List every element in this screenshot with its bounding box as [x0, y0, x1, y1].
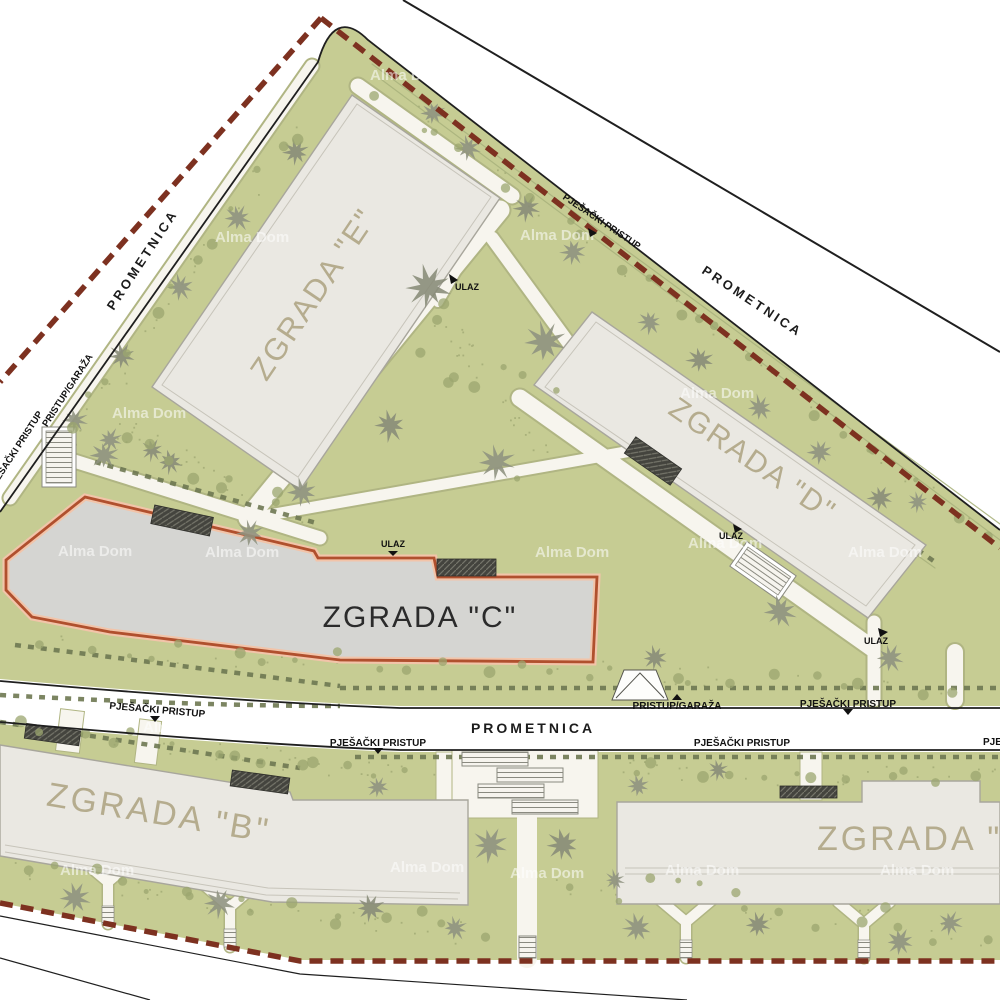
bush-icon	[101, 378, 108, 385]
bush-icon	[272, 498, 280, 506]
grass-dot	[502, 401, 504, 403]
watermark-text: Alma Dom	[535, 544, 609, 561]
bush-icon	[731, 888, 740, 897]
grass-dot	[745, 778, 747, 780]
bush-icon	[153, 307, 165, 319]
bush-icon	[607, 665, 612, 670]
grass-dot	[153, 327, 155, 329]
grass-dot	[374, 918, 376, 920]
watermark-text: Alma Dom	[510, 865, 584, 882]
grass-dot	[289, 759, 291, 761]
grass-dot	[353, 912, 355, 914]
grass-dot	[194, 456, 196, 458]
grass-dot	[887, 682, 889, 684]
grass-dot	[301, 521, 303, 523]
grass-dot	[193, 271, 195, 273]
bush-icon	[519, 371, 527, 379]
bush-icon	[841, 683, 848, 690]
bush-icon	[286, 897, 297, 908]
bush-icon	[247, 909, 254, 916]
grass-dot	[570, 893, 572, 895]
bush-icon	[376, 666, 383, 673]
label-ulaz-d2: ULAZ	[864, 636, 888, 646]
grass-dot	[933, 487, 935, 489]
grass-dot	[460, 921, 462, 923]
grass-dot	[126, 383, 128, 385]
bush-icon	[443, 377, 454, 388]
grass-dot	[391, 771, 393, 773]
grass-dot	[62, 639, 64, 641]
grass-dot	[61, 636, 63, 638]
bush-icon	[805, 772, 816, 783]
bush-icon	[144, 889, 149, 894]
bush-icon	[454, 143, 463, 152]
grass-dot	[777, 784, 779, 786]
bush-icon	[164, 456, 173, 465]
bush-icon	[109, 738, 119, 748]
label-pjesacki-s3: PJEŠAČKI PRISTUP	[694, 736, 790, 749]
bush-icon	[330, 918, 341, 929]
bush-icon	[741, 905, 748, 912]
grass-dot	[940, 693, 942, 695]
grass-dot	[992, 771, 994, 773]
grass-dot	[133, 427, 135, 429]
watermark-text: Alma Dom	[370, 67, 444, 84]
bush-icon	[292, 657, 298, 663]
label-pristup-garaza-south: PRISTUP/GARAŽA	[633, 699, 722, 712]
bush-icon	[852, 678, 864, 690]
grass-dot	[994, 769, 996, 771]
grass-dot	[455, 943, 457, 945]
grass-dot	[377, 917, 379, 919]
grass-dot	[469, 344, 471, 346]
grass-dot	[328, 775, 330, 777]
grass-dot	[450, 341, 452, 343]
grass-dot	[203, 467, 205, 469]
bush-icon	[725, 679, 735, 689]
grass-dot	[904, 481, 906, 483]
bush-icon	[525, 193, 535, 203]
bush-icon	[774, 908, 783, 917]
bush-icon	[481, 933, 490, 942]
grass-dot	[557, 668, 559, 670]
bush-icon	[566, 883, 574, 891]
grass-dot	[461, 329, 463, 331]
grass-dot	[282, 769, 284, 771]
grass-dot	[124, 373, 126, 375]
grass-dot	[472, 345, 474, 347]
bush-icon	[369, 91, 379, 101]
bush-icon	[468, 381, 480, 393]
grass-dot	[364, 923, 366, 925]
grass-dot	[538, 215, 540, 217]
grass-dot	[867, 771, 869, 773]
grass-dot	[624, 275, 626, 277]
grass-dot	[681, 779, 683, 781]
grass-dot	[168, 303, 170, 305]
bush-icon	[371, 773, 376, 778]
grass-dot	[186, 449, 188, 451]
watermark-text: Alma Dom	[390, 859, 464, 876]
bush-icon	[333, 647, 342, 656]
bush-icon	[297, 760, 308, 771]
grass-dot	[633, 760, 635, 762]
grass-dot	[401, 766, 403, 768]
grass-dot	[215, 658, 217, 660]
grass-dot	[29, 878, 31, 880]
grass-dot	[203, 244, 205, 246]
site-plan: Alma DomAlma DomAlma DomAlma DomAlma Dom…	[0, 0, 1000, 1000]
grass-dot	[189, 751, 191, 753]
grass-dot	[713, 334, 715, 336]
grass-dot	[224, 476, 226, 478]
bush-icon	[187, 473, 199, 485]
bush-icon	[439, 657, 448, 666]
bush-icon	[617, 265, 628, 276]
grass-dot	[121, 895, 123, 897]
ramp-a	[780, 786, 837, 798]
bush-icon	[842, 775, 850, 783]
grass-dot	[842, 783, 844, 785]
grass-dot	[428, 121, 430, 123]
grass-dot	[258, 194, 260, 196]
grass-dot	[525, 434, 527, 436]
bush-icon	[971, 771, 982, 782]
grass-dot	[602, 661, 604, 663]
bush-icon	[899, 767, 907, 775]
grass-dot	[280, 750, 282, 752]
grass-dot	[368, 762, 370, 764]
grass-dot	[198, 462, 200, 464]
grass-dot	[294, 757, 296, 759]
bush-icon	[422, 128, 427, 133]
grass-dot	[459, 347, 461, 349]
watermark-text: Alma Dom	[58, 543, 132, 560]
bush-icon	[929, 938, 937, 946]
grass-dot	[190, 258, 192, 260]
grass-dot	[545, 444, 547, 446]
grass-dot	[505, 400, 507, 402]
bush-icon	[335, 913, 341, 919]
grass-dot	[933, 766, 935, 768]
grass-dot	[514, 417, 516, 419]
grass-dot	[119, 423, 121, 425]
bush-icon	[634, 770, 640, 776]
grass-dot	[341, 767, 343, 769]
grass-dot	[367, 774, 369, 776]
watermark-text: Alma Dom	[143, 719, 217, 736]
bush-icon	[725, 771, 734, 780]
bush-icon	[880, 902, 891, 913]
grass-dot	[533, 449, 535, 451]
grass-dot	[303, 664, 305, 666]
grass-dot	[648, 773, 650, 775]
grass-dot	[414, 933, 416, 935]
bush-icon	[272, 487, 283, 498]
bush-icon	[484, 666, 496, 678]
grass-dot	[401, 922, 403, 924]
grass-dot	[745, 912, 747, 914]
grass-dot	[156, 894, 158, 896]
grass-dot	[679, 768, 681, 770]
bush-icon	[229, 751, 240, 762]
grass-dot	[867, 909, 869, 911]
watermark-text: Alma Dom	[215, 229, 289, 246]
grass-dot	[216, 759, 218, 761]
grass-dot	[433, 774, 435, 776]
bush-icon	[402, 666, 411, 675]
watermark-text: Alma Dom	[848, 544, 922, 561]
grass-dot	[886, 766, 888, 768]
grass-dot	[980, 945, 982, 947]
bush-icon	[761, 775, 767, 781]
bush-icon	[697, 771, 709, 783]
pjesacki-s4-arrow-icon	[843, 709, 853, 715]
grass-dot	[145, 330, 147, 332]
grass-dot	[434, 325, 436, 327]
label-ulaz-c: ULAZ	[381, 539, 405, 549]
grass-dot	[476, 377, 478, 379]
label-building-c: ZGRADA "C"	[323, 601, 518, 634]
bush-icon	[586, 674, 593, 681]
bush-icon	[123, 349, 131, 357]
garden-stairs	[224, 929, 236, 947]
grass-dot	[629, 762, 631, 764]
bush-icon	[67, 422, 79, 434]
grass-dot	[157, 435, 159, 437]
grass-dot	[296, 127, 298, 129]
road-bottom-2	[0, 958, 150, 1000]
grass-dot	[109, 383, 111, 385]
grass-dot	[760, 365, 762, 367]
bush-icon	[685, 680, 691, 686]
grass-dot	[518, 417, 520, 419]
bush-icon	[51, 862, 59, 870]
bush-icon	[645, 757, 656, 768]
grass-dot	[138, 882, 140, 884]
bush-icon	[794, 771, 799, 776]
bush-icon	[381, 913, 392, 924]
watermark-text: Alma Dom	[880, 862, 954, 879]
bush-icon	[813, 671, 822, 680]
bush-icon	[145, 439, 156, 450]
grass-dot	[298, 910, 300, 912]
bush-icon	[894, 923, 903, 932]
bush-icon	[170, 741, 175, 746]
grass-dot	[675, 683, 677, 685]
bush-icon	[839, 431, 847, 439]
stairs-west	[42, 427, 76, 487]
bush-icon	[553, 387, 560, 394]
bush-icon	[343, 761, 352, 770]
grass-dot	[163, 743, 165, 745]
grass-dot	[468, 365, 470, 367]
bush-icon	[913, 477, 918, 482]
grass-dot	[387, 764, 389, 766]
grass-dot	[241, 494, 243, 496]
grass-dot	[797, 675, 799, 677]
grass-dot	[462, 332, 464, 334]
grass-dot	[513, 424, 515, 426]
bush-icon	[432, 315, 442, 325]
grass-dot	[147, 898, 149, 900]
grass-dot	[161, 891, 163, 893]
grass-dot	[206, 907, 208, 909]
grass-dot	[186, 461, 188, 463]
bush-icon	[256, 758, 266, 768]
bush-icon	[809, 410, 820, 421]
bush-icon	[501, 364, 507, 370]
bush-icon	[193, 255, 202, 264]
bush-icon	[889, 772, 897, 780]
grass-dot	[167, 660, 169, 662]
bush-icon	[546, 668, 553, 675]
label-ulaz-e: ULAZ	[455, 282, 479, 292]
watermark-text: Alma Dom	[205, 544, 279, 561]
grass-dot	[427, 931, 429, 933]
bush-icon	[238, 896, 244, 902]
bush-icon	[225, 475, 232, 482]
grass-dot	[131, 432, 133, 434]
bush-icon	[35, 728, 43, 736]
garden-stairs	[680, 940, 692, 958]
grass-dot	[101, 387, 103, 389]
grass-dot	[600, 890, 602, 892]
grass-dot	[456, 355, 458, 357]
bush-icon	[85, 391, 92, 398]
bush-icon	[127, 653, 132, 658]
bush-icon	[417, 906, 428, 917]
grass-dot	[948, 776, 950, 778]
bush-icon	[122, 432, 133, 443]
bush-icon	[857, 917, 868, 928]
grass-dot	[931, 930, 933, 932]
grass-dot	[149, 889, 151, 891]
grass-dot	[86, 408, 88, 410]
grass-dot	[883, 681, 885, 683]
grass-dot	[810, 406, 812, 408]
grass-dot	[156, 319, 158, 321]
bush-icon	[24, 865, 34, 875]
bush-icon	[307, 757, 319, 769]
grass-dot	[880, 462, 882, 464]
grass-dot	[978, 769, 980, 771]
grass-dot	[837, 781, 839, 783]
bush-icon	[168, 284, 173, 289]
grass-dot	[462, 355, 464, 357]
label-pjesacki-s5: PJEŠAČKI PRISTUP	[983, 735, 1000, 748]
grass-dot	[664, 681, 666, 683]
grass-dot	[623, 771, 625, 773]
grass-dot	[679, 668, 681, 670]
grass-dot	[15, 862, 17, 864]
bush-icon	[518, 660, 527, 669]
bush-icon	[677, 310, 688, 321]
watermark-text: Alma Dom	[112, 405, 186, 422]
bush-icon	[35, 640, 44, 649]
grass-dot	[235, 666, 237, 668]
bush-icon	[228, 206, 233, 211]
bush-icon	[697, 880, 703, 886]
grass-dot	[917, 776, 919, 778]
grass-dot	[135, 423, 137, 425]
bush-icon	[185, 892, 193, 900]
bush-icon	[947, 688, 957, 698]
grass-dot	[238, 207, 240, 209]
bush-icon	[514, 475, 520, 481]
grass-dot	[458, 354, 460, 356]
grass-dot	[213, 470, 215, 472]
grass-dot	[482, 364, 484, 366]
grass-dot	[267, 662, 269, 664]
label-pjesacki-s4: PJEŠAČKI PRISTUP	[800, 697, 896, 710]
bush-icon	[402, 767, 408, 773]
bush-icon	[616, 898, 623, 905]
bush-icon	[215, 750, 224, 759]
grass-dot	[686, 767, 688, 769]
garden-stairs	[858, 940, 870, 958]
grass-dot	[835, 923, 837, 925]
bush-icon	[984, 935, 993, 944]
bush-icon	[292, 134, 303, 145]
grass-dot	[170, 753, 172, 755]
grass-dot	[529, 432, 531, 434]
bush-icon	[811, 924, 819, 932]
bush-icon	[415, 348, 425, 358]
grass-dot	[79, 430, 81, 432]
grass-dot	[266, 747, 268, 749]
bush-icon	[438, 298, 449, 309]
grass-dot	[716, 679, 718, 681]
watermark-text: Alma Dom	[520, 227, 594, 244]
bush-icon	[235, 648, 246, 659]
grass-dot	[497, 169, 499, 171]
grass-dot	[770, 918, 772, 920]
bush-icon	[258, 658, 266, 666]
bush-icon	[501, 183, 510, 192]
bush-icon	[279, 141, 289, 151]
label-prometnica-south: PROMETNICA	[471, 720, 595, 736]
bush-icon	[174, 640, 182, 648]
label-pjesacki-s2: PJEŠAČKI PRISTUP	[330, 736, 426, 749]
grass-dot	[219, 743, 221, 745]
site-plan-canvas: Alma DomAlma DomAlma DomAlma DomAlma Dom…	[0, 0, 1000, 1000]
bush-icon	[431, 129, 438, 136]
grass-dot	[547, 451, 549, 453]
grass-dot	[510, 420, 512, 422]
grass-dot	[194, 265, 196, 267]
bush-icon	[673, 673, 684, 684]
bush-icon	[931, 778, 940, 787]
grass-dot	[270, 904, 272, 906]
grass-dot	[177, 662, 179, 664]
bush-icon	[216, 482, 227, 493]
bush-icon	[769, 669, 780, 680]
grass-dot	[707, 667, 709, 669]
ramp-c-right	[437, 559, 496, 576]
bush-icon	[437, 919, 445, 927]
bush-icon	[918, 689, 929, 700]
grass-dot	[445, 326, 447, 328]
bush-icon	[15, 715, 27, 727]
grass-dot	[375, 930, 377, 932]
grass-dot	[242, 759, 244, 761]
grass-dot	[656, 764, 658, 766]
grass-dot	[951, 938, 953, 940]
grass-dot	[859, 910, 861, 912]
grass-dot	[139, 439, 141, 441]
bush-icon	[645, 873, 655, 883]
